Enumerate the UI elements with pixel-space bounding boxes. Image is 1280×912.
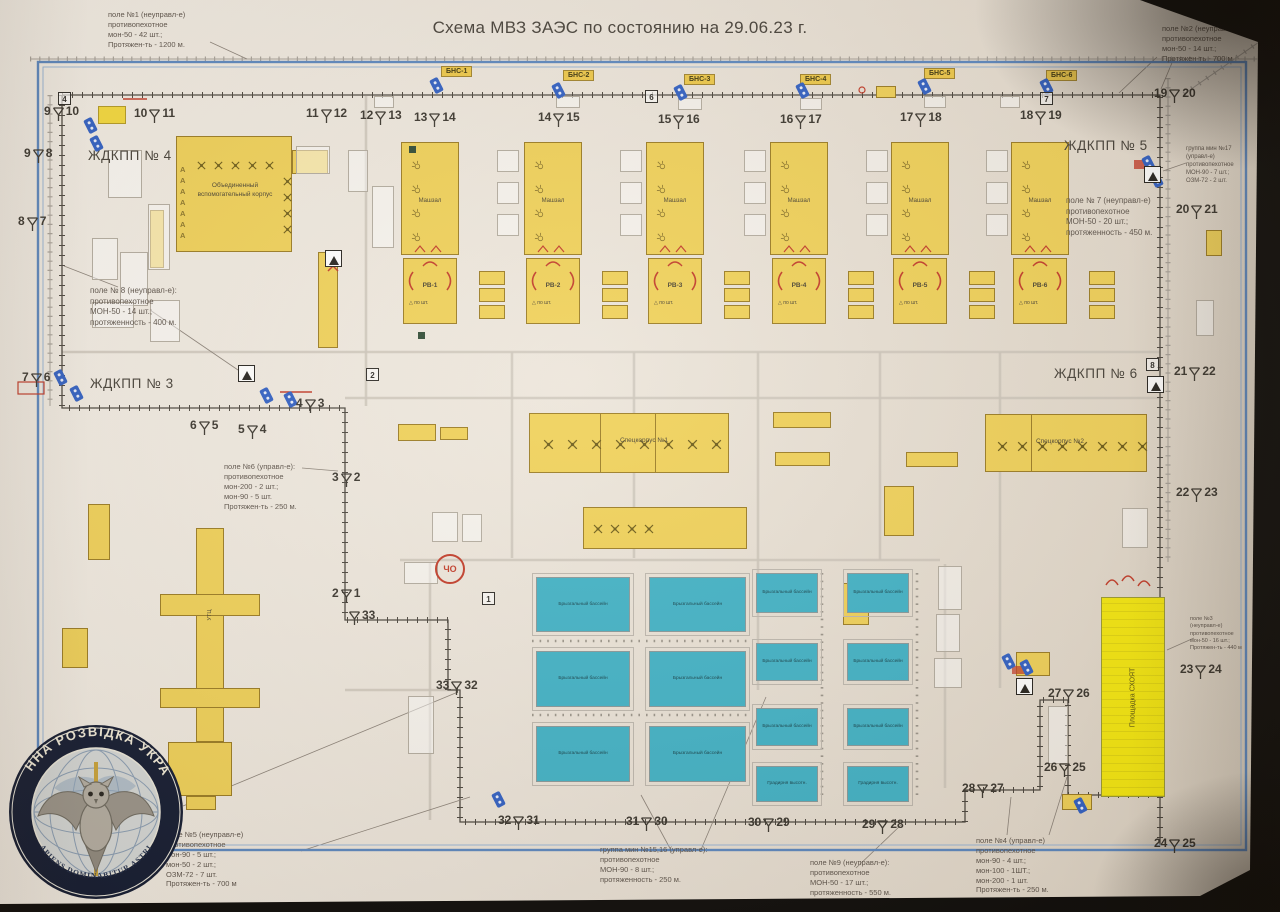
- surveillance-point-icon: [340, 586, 353, 607]
- utc-label: УТЦ: [207, 603, 213, 627]
- paper-document: Схема МВЗ ЗАЭС по состоянию на 29.06.23 …: [0, 0, 1280, 912]
- surveillance-point-icon: [914, 110, 927, 131]
- marker-number: 10: [66, 104, 79, 118]
- mashzal-label: Машзал: [646, 198, 704, 204]
- triangle-sign: [1016, 678, 1033, 695]
- surveillance-point-icon: [672, 112, 685, 133]
- perimeter-marker: 2122: [1174, 364, 1216, 385]
- surveillance-point-icon: [26, 214, 39, 235]
- perimeter-marker: 54: [238, 422, 266, 443]
- bns-label: БНС-5: [924, 68, 955, 79]
- checkpoint-label: ЖДКПП № 5: [1064, 138, 1148, 153]
- surveillance-point-icon: [374, 108, 387, 129]
- post-number: 1: [482, 592, 495, 605]
- mine-x-icon: [284, 194, 291, 201]
- marker-number: 3: [318, 396, 325, 410]
- surveillance-point-icon: [340, 470, 353, 491]
- site-plan: Объединенный вспомогательный корпусА А А…: [0, 0, 1280, 912]
- minefield-note: поле №9 (неуправл-е):противопехотноеМОН-…: [810, 858, 891, 898]
- eye-icon: [902, 233, 910, 241]
- mashzal-label: Машзал: [1011, 198, 1069, 204]
- mine-x-icon: [284, 178, 291, 185]
- marker-number: 6: [190, 418, 197, 432]
- cho-marker: ЧО: [435, 554, 465, 584]
- equipment-square: [409, 146, 416, 153]
- eye-icon: [412, 161, 420, 169]
- marker-number: 16: [780, 112, 793, 126]
- marker-number: 12: [334, 106, 347, 120]
- intelligence-emblem: ВОЄННА РОЗВІДКА УКРАЇНИ SAPIENS DOMINABI…: [6, 722, 186, 902]
- red-arc: [792, 262, 806, 266]
- red-mark: [859, 87, 865, 93]
- surveillance-point-icon: [148, 106, 161, 127]
- marker-number: 2: [354, 470, 361, 484]
- reactor-label: РВ-1: [403, 282, 457, 289]
- reactor-sub-label: △ по шт.: [899, 300, 945, 306]
- marker-number: 11: [162, 106, 175, 120]
- perimeter-marker: 1718: [900, 110, 942, 131]
- minefield-note: поле № 8 (неуправл-е):противопехотноеМОН…: [90, 286, 177, 328]
- icons-layer: [0, 0, 1280, 912]
- eye-icon: [1022, 161, 1030, 169]
- surveillance-point-icon: [30, 370, 43, 391]
- marker-number: 23: [1204, 485, 1217, 499]
- mine-x-icon: [266, 162, 273, 169]
- marker-number: 21: [1204, 202, 1217, 216]
- mashzal-label: Машзал: [770, 198, 828, 204]
- bns-label: БНС-3: [684, 74, 715, 85]
- perimeter-marker: 1314: [414, 110, 456, 131]
- mine-x-icon: [232, 162, 239, 169]
- marker-number: 18: [1020, 108, 1033, 122]
- marker-number: 17: [808, 112, 821, 126]
- marker-number: 3: [332, 470, 339, 484]
- bns-label: БНС-2: [563, 70, 594, 81]
- minefield-note: поле №6 (управл-е):противопехотноемон-20…: [224, 462, 297, 511]
- surveillance-point-icon: [428, 110, 441, 131]
- red-chevrons: [660, 246, 686, 252]
- minefield-note: группа мин №15,16 (управл-е):противопехо…: [600, 845, 708, 885]
- red-arc: [1033, 262, 1047, 266]
- eye-icon: [535, 161, 543, 169]
- surveillance-point-icon: [52, 104, 65, 125]
- triangle-sign: [1147, 376, 1164, 393]
- marker-number: 31: [526, 813, 539, 827]
- eye-icon: [657, 185, 665, 193]
- reactor-label: РВ-5: [893, 282, 947, 289]
- minefield-note: поле №3(неуправл-е)противопехотноемон-50…: [1190, 616, 1242, 652]
- marker-number: 31: [626, 814, 639, 828]
- perimeter-marker: 1112: [306, 106, 347, 127]
- perimeter-marker: 76: [22, 370, 50, 391]
- marker-number: 26: [1076, 686, 1089, 700]
- mine-x-icon: [215, 162, 222, 169]
- eye-icon: [902, 185, 910, 193]
- perimeter-marker: 3231: [498, 813, 540, 834]
- perimeter-marker: 2425: [1154, 836, 1196, 857]
- surveillance-point-icon: [1194, 662, 1207, 683]
- mashzal-label: Машзал: [401, 198, 459, 204]
- reactor-sub-label: △ по шт.: [532, 300, 578, 306]
- eye-icon: [657, 161, 665, 169]
- perimeter-marker: 2223: [1176, 485, 1218, 506]
- reactor-sub-label: △ по шт.: [654, 300, 700, 306]
- mine-x-icon: [628, 525, 636, 533]
- eye-icon: [1022, 209, 1030, 217]
- perimeter-marker: 3332: [436, 678, 478, 699]
- marker-number: 8: [46, 146, 53, 160]
- eye-icon: [535, 233, 543, 241]
- post-number: 2: [366, 368, 379, 381]
- eye-icon: [412, 185, 420, 193]
- red-chevrons: [415, 246, 441, 252]
- eye-icon: [902, 209, 910, 217]
- mine-x-icon: [611, 525, 619, 533]
- marker-number: 14: [442, 110, 455, 124]
- post-number: 4: [58, 92, 71, 105]
- surveillance-point-icon: [1168, 836, 1181, 857]
- perimeter-marker: 2021: [1176, 202, 1218, 223]
- marker-number: 6: [44, 370, 51, 384]
- eye-icon: [781, 209, 789, 217]
- surveillance-point-icon: [1190, 485, 1203, 506]
- marker-number: 9: [24, 146, 31, 160]
- perimeter-marker: 2726: [1048, 686, 1090, 707]
- surveillance-point-icon: [1188, 364, 1201, 385]
- red-mark: [1122, 576, 1134, 581]
- surveillance-point-icon: [348, 608, 361, 629]
- eye-icon: [535, 209, 543, 217]
- eye-icon: [1022, 185, 1030, 193]
- reactor-sub-label: △ по шт.: [778, 300, 824, 306]
- marker-number: 27: [1048, 686, 1061, 700]
- red-chevrons: [784, 246, 810, 252]
- checkpoint-label: ЖДКПП № 6: [1054, 366, 1138, 381]
- marker-number: 18: [928, 110, 941, 124]
- surveillance-point-icon: [198, 418, 211, 439]
- perimeter-marker: 910: [44, 104, 79, 125]
- spec1-label: Спецкорпус №1: [589, 437, 699, 444]
- mine-x-icon: [198, 162, 205, 169]
- reactor-label: РВ-3: [648, 282, 702, 289]
- marker-number: 22: [1202, 364, 1215, 378]
- mine-x-icon: [712, 440, 721, 449]
- marker-number: 29: [862, 817, 875, 831]
- surveillance-point-icon: [32, 146, 45, 167]
- perimeter-marker: 87: [18, 214, 46, 235]
- surveillance-point-icon: [246, 422, 259, 443]
- red-arc: [423, 262, 437, 266]
- mine-x-icon: [284, 226, 291, 233]
- equipment-square: [418, 332, 425, 339]
- perimeter-marker: 98: [24, 146, 52, 167]
- marker-number: 28: [890, 817, 903, 831]
- surveillance-point-icon: [512, 813, 525, 834]
- perimeter-marker: 1617: [780, 112, 822, 133]
- reactor-sub-label: △ по шт.: [409, 300, 455, 306]
- mine-x-icon: [544, 440, 553, 449]
- red-arc: [913, 262, 927, 266]
- marker-number: 2: [332, 586, 339, 600]
- surveillance-point-icon: [304, 396, 317, 417]
- perimeter-marker: 43: [296, 396, 324, 417]
- marker-number: 24: [1154, 836, 1167, 850]
- eye-icon: [781, 233, 789, 241]
- eye-icon: [902, 161, 910, 169]
- aux-corpus-label: Объединенный вспомогательный корпус: [186, 182, 284, 200]
- mashzal-label: Машзал: [891, 198, 949, 204]
- red-mark: [1138, 581, 1150, 586]
- legend-square: [98, 106, 126, 124]
- triangle-sign: [325, 250, 342, 267]
- perimeter-marker: 3130: [626, 814, 668, 835]
- perimeter-marker: 1415: [538, 110, 580, 131]
- mine-x-icon: [284, 210, 291, 217]
- surveillance-point-icon: [1034, 108, 1047, 129]
- triangle-sign: [238, 365, 255, 382]
- mine-x-icon: [594, 525, 602, 533]
- perimeter-marker: 21: [332, 586, 360, 607]
- mine-x-icon: [1118, 442, 1127, 451]
- aux-a-column: А А А А А А А: [180, 164, 185, 241]
- marker-number: 13: [388, 108, 401, 122]
- marker-number: 19: [1048, 108, 1061, 122]
- perimeter-marker: 2827: [962, 781, 1004, 802]
- reactor-label: РВ-6: [1013, 282, 1067, 289]
- minefield-note: группа мин №17(управл-е)противопехотноеМ…: [1186, 146, 1234, 186]
- post-number: 6: [645, 90, 658, 103]
- perimeter-marker: 1213: [360, 108, 402, 129]
- eye-icon: [781, 185, 789, 193]
- surveillance-point-icon: [552, 110, 565, 131]
- perimeter-marker: 2625: [1044, 760, 1086, 781]
- post-number: 7: [1040, 92, 1053, 105]
- surveillance-point-icon: [1058, 760, 1071, 781]
- marker-number: 9: [44, 104, 51, 118]
- eye-icon: [1022, 233, 1030, 241]
- perimeter-marker: 65: [190, 418, 218, 439]
- perimeter-marker: 33: [348, 608, 375, 629]
- triangle-sign: [1144, 166, 1161, 183]
- surveillance-point-icon: [876, 817, 889, 838]
- marker-number: 16: [686, 112, 699, 126]
- surveillance-point-icon: [640, 814, 653, 835]
- marker-number: 7: [40, 214, 47, 228]
- marker-number: 32: [464, 678, 477, 692]
- marker-number: 21: [1174, 364, 1187, 378]
- minefield-note: поле №1 (неуправл-е)противопехотноемон-5…: [108, 10, 185, 50]
- eye-icon: [781, 161, 789, 169]
- marker-number: 33: [436, 678, 449, 692]
- surveillance-point-icon: [320, 106, 333, 127]
- minefield-note: поле №2 (неуправл-е)противопехотноемон-5…: [1162, 24, 1239, 64]
- marker-number: 25: [1072, 760, 1085, 774]
- surveillance-point-icon: [450, 678, 463, 699]
- red-arc: [668, 262, 682, 266]
- reactor-label: РВ-4: [772, 282, 826, 289]
- marker-number: 30: [654, 814, 667, 828]
- marker-number: 24: [1208, 662, 1221, 676]
- marker-number: 23: [1180, 662, 1193, 676]
- perimeter-marker: 2928: [862, 817, 904, 838]
- marker-number: 20: [1176, 202, 1189, 216]
- marker-number: 4: [260, 422, 267, 436]
- marker-number: 30: [748, 815, 761, 829]
- red-chevrons: [1025, 246, 1051, 252]
- marker-number: 29: [776, 815, 789, 829]
- marker-number: 10: [134, 106, 147, 120]
- mashzal-label: Машзал: [524, 198, 582, 204]
- marker-number: 15: [566, 110, 579, 124]
- marker-number: 33: [362, 608, 375, 622]
- marker-number: 22: [1176, 485, 1189, 499]
- mine-x-icon: [568, 440, 577, 449]
- marker-number: 5: [212, 418, 219, 432]
- checkpoint-label: ЖДКПП № 4: [88, 148, 172, 163]
- reactor-label: РВ-2: [526, 282, 580, 289]
- surveillance-point-icon: [976, 781, 989, 802]
- marker-number: 26: [1044, 760, 1057, 774]
- marker-number: 19: [1154, 86, 1167, 100]
- perimeter-marker: 3029: [748, 815, 790, 836]
- red-chevrons: [538, 246, 564, 252]
- mine-x-icon: [1138, 442, 1147, 451]
- eye-icon: [657, 233, 665, 241]
- marker-number: 8: [18, 214, 25, 228]
- mine-x-icon: [249, 162, 256, 169]
- surveillance-point-icon: [794, 112, 807, 133]
- marker-number: 5: [238, 422, 245, 436]
- red-arc: [546, 262, 560, 266]
- marker-number: 7: [22, 370, 29, 384]
- minefield-note: поле №4 (управл-е)противопехотноемон-90 …: [976, 836, 1049, 895]
- marker-number: 17: [900, 110, 913, 124]
- surveillance-point-icon: [1190, 202, 1203, 223]
- surveillance-point-icon: [1168, 86, 1181, 107]
- perimeter-marker: 1819: [1020, 108, 1062, 129]
- perimeter-marker: 1516: [658, 112, 700, 133]
- marker-number: 12: [360, 108, 373, 122]
- surveillance-point-icon: [1062, 686, 1075, 707]
- marker-number: 27: [990, 781, 1003, 795]
- checkpoint-label: ЖДКПП № 3: [90, 376, 174, 391]
- marker-number: 14: [538, 110, 551, 124]
- red-mark: [1106, 580, 1118, 585]
- eye-icon: [535, 185, 543, 193]
- marker-number: 1: [354, 586, 361, 600]
- perimeter-marker: 1920: [1154, 86, 1196, 107]
- perimeter-marker: 32: [332, 470, 360, 491]
- spec2-label: Спецкорпус №2: [1005, 438, 1115, 445]
- surveillance-point-icon: [762, 815, 775, 836]
- eye-icon: [412, 209, 420, 217]
- marker-number: 25: [1182, 836, 1195, 850]
- reactor-sub-label: △ по шт.: [1019, 300, 1065, 306]
- marker-number: 11: [306, 106, 319, 120]
- perimeter-marker: 1011: [134, 106, 175, 127]
- marker-number: 32: [498, 813, 511, 827]
- marker-number: 28: [962, 781, 975, 795]
- marker-number: 15: [658, 112, 671, 126]
- marker-number: 13: [414, 110, 427, 124]
- marker-number: 4: [296, 396, 303, 410]
- photo-background: Схема МВЗ ЗАЭС по состоянию на 29.06.23 …: [0, 0, 1280, 912]
- red-chevrons: [905, 246, 931, 252]
- bns-label: БНС-4: [800, 74, 831, 85]
- marker-number: 20: [1182, 86, 1195, 100]
- eye-icon: [412, 233, 420, 241]
- bns-label: БНС-1: [441, 66, 472, 77]
- eye-icon: [657, 209, 665, 217]
- perimeter-marker: 2324: [1180, 662, 1222, 683]
- mine-x-icon: [645, 525, 653, 533]
- minefield-note: поле № 7 (неуправл-е)противопехотноеМОН-…: [1066, 196, 1152, 238]
- bns-label: БНС-6: [1046, 70, 1077, 81]
- post-number: 8: [1146, 358, 1159, 371]
